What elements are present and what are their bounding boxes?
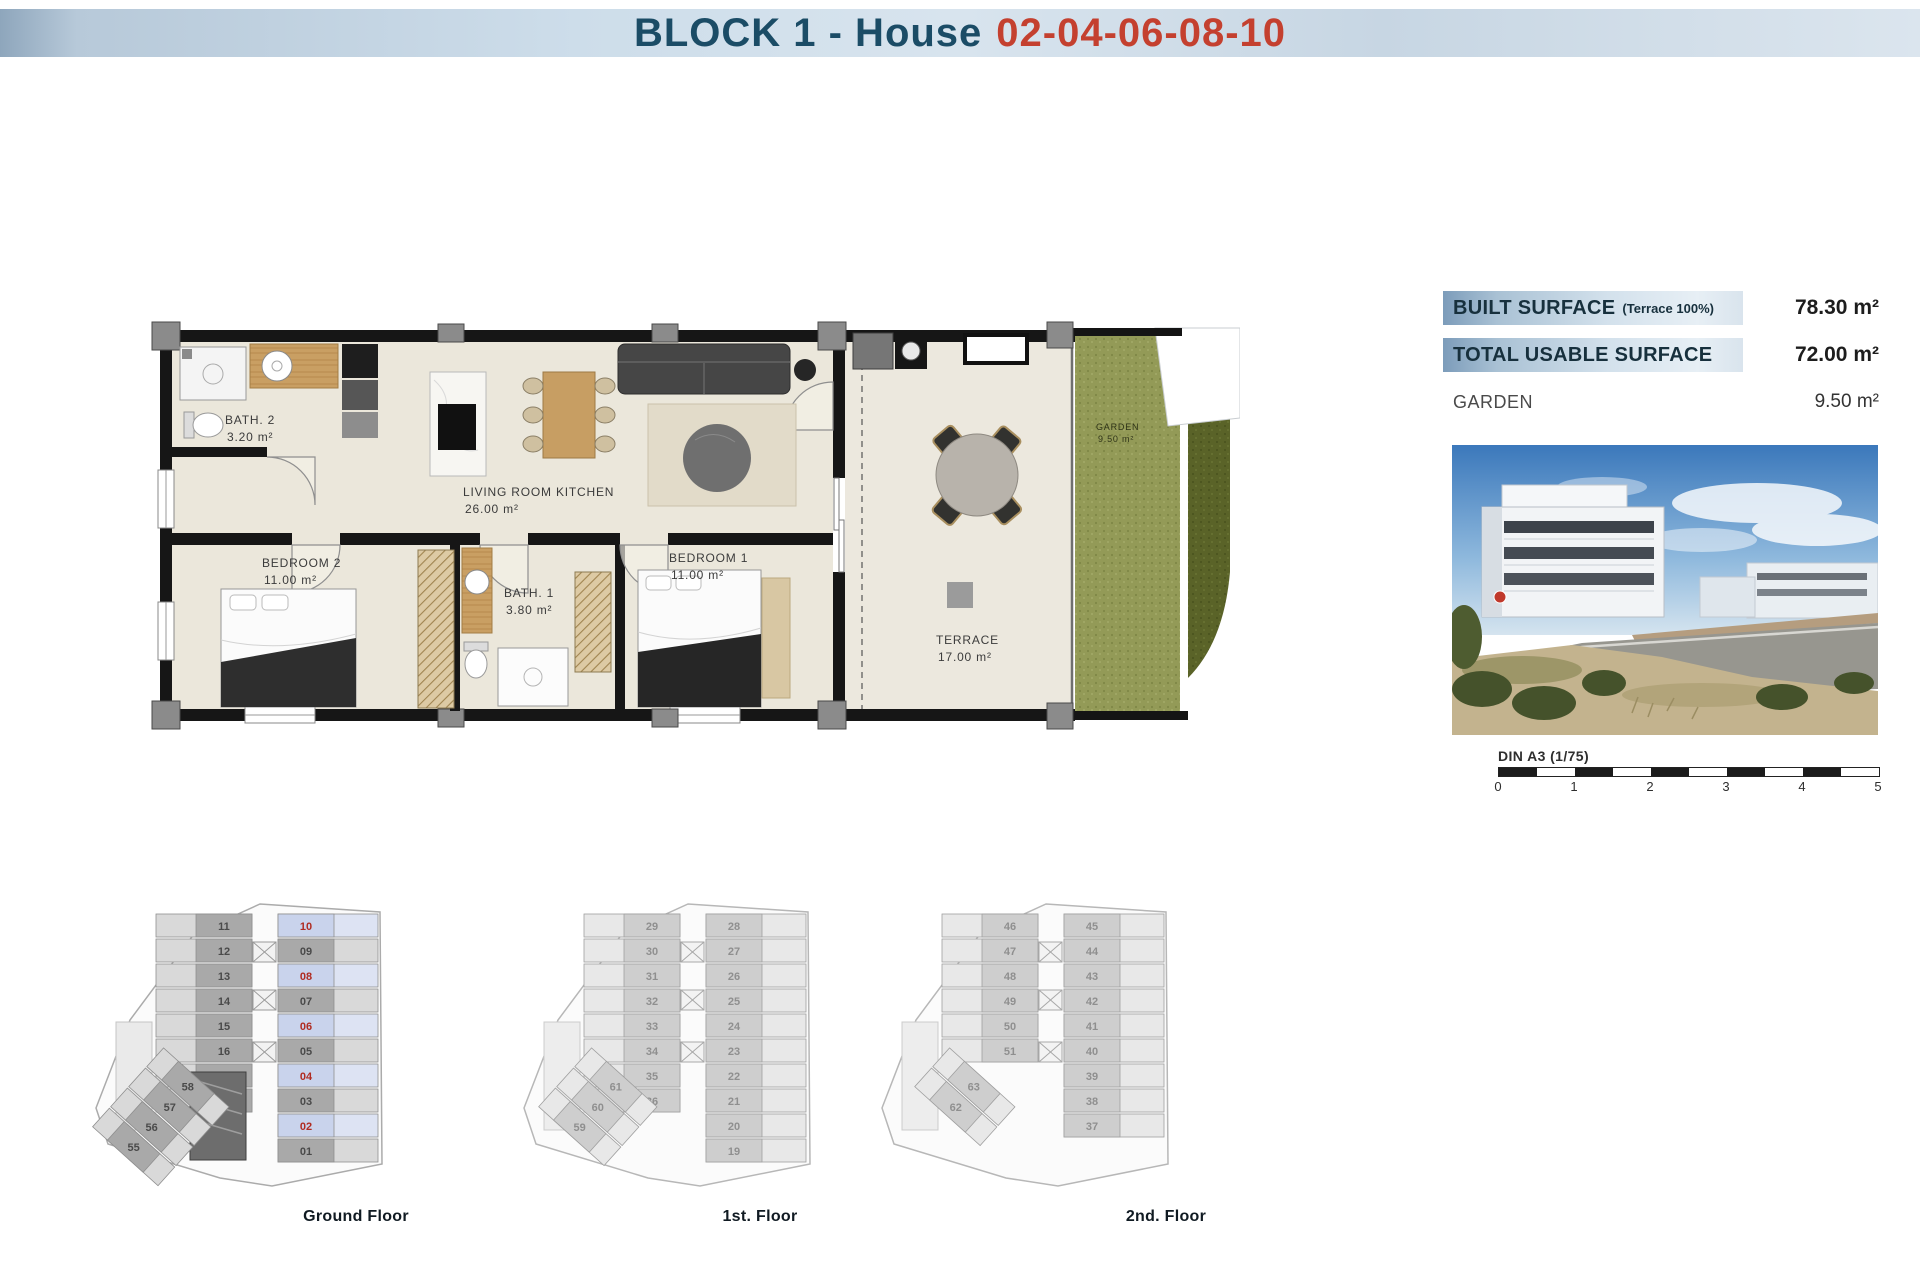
wall-top	[160, 330, 847, 342]
garden-wall-bottom	[1070, 711, 1188, 720]
unit-cell: 14	[156, 989, 252, 1012]
terrace-label: TERRACE	[936, 633, 999, 647]
scale-tick: 2	[1646, 779, 1653, 794]
unit-number: 01	[300, 1146, 312, 1158]
scale-segment	[1575, 768, 1613, 776]
usable-surface-value: 72.00 m²	[1743, 343, 1879, 367]
garden-corner-paving	[1155, 328, 1240, 426]
bath1-area: 3.80 m²	[506, 603, 552, 617]
unit-number: 22	[728, 1071, 740, 1083]
unit-number: 14	[218, 996, 231, 1008]
living-area: 26.00 m²	[465, 502, 519, 516]
unit-cell: 21	[706, 1089, 806, 1112]
living-rug	[648, 404, 796, 506]
unit-cell: 28	[706, 914, 806, 937]
unit-number: 34	[646, 1046, 659, 1058]
unit-cell: 38	[1064, 1089, 1164, 1112]
stair-box	[681, 1042, 704, 1062]
unit-number: 61	[610, 1082, 622, 1094]
unit-number: 49	[1004, 996, 1016, 1008]
unit-number: 31	[646, 971, 658, 983]
terrace-wall-bottom	[845, 709, 1075, 721]
unit-number: 41	[1086, 1021, 1098, 1033]
surface-table: BUILT SURFACE (Terrace 100%) 78.30 m² TO…	[1443, 291, 1879, 432]
second-floor-label: 2nd. Floor	[1076, 1208, 1256, 1226]
unit-number: 19	[728, 1146, 740, 1158]
unit-number: 38	[1086, 1096, 1098, 1108]
unit-number: 11	[218, 921, 230, 933]
scale-tick: 4	[1798, 779, 1805, 794]
scale-bar: DIN A3 (1/75) 012345	[1498, 748, 1880, 795]
unit-number: 28	[728, 921, 740, 933]
unit-number: 55	[127, 1142, 139, 1154]
bath2-label: BATH. 2	[225, 413, 275, 427]
unit-number: 63	[968, 1082, 980, 1094]
scale-tick: 1	[1570, 779, 1577, 794]
built-surface-value: 78.30 m²	[1743, 296, 1879, 320]
unit-number: 20	[728, 1121, 740, 1133]
unit-number: 51	[1004, 1046, 1016, 1058]
unit-cell: 37	[1064, 1114, 1164, 1137]
unit-number: 12	[218, 946, 230, 958]
mini-plan-1st-floor: 28 27 26 25 24 23 22 21 20	[500, 902, 860, 1202]
unit-number: 33	[646, 1021, 658, 1033]
unit-cell: 12	[156, 939, 252, 962]
unit-number: 56	[146, 1122, 158, 1134]
unit-cell: 29	[584, 914, 680, 937]
unit-number: 26	[728, 971, 740, 983]
page-title-house-numbers: 02-04-06-08-10	[996, 11, 1286, 56]
unit-number: 27	[728, 946, 740, 958]
unit-cell: 03	[278, 1089, 378, 1112]
unit-number: 44	[1086, 946, 1099, 958]
mini-plan-svg: 10 09 08 07 06 05 04 03 02	[72, 902, 432, 1202]
unit-cell: 09	[278, 939, 378, 962]
unit-cell: 07	[278, 989, 378, 1012]
bedroom2-label: BEDROOM 2	[262, 556, 341, 570]
stair-box	[1039, 1042, 1062, 1062]
unit-number: 30	[646, 946, 658, 958]
terrace-planter	[947, 582, 973, 608]
unit-cell: 43	[1064, 964, 1164, 987]
unit-cell: 39	[1064, 1064, 1164, 1087]
unit-cell: 48	[942, 964, 1038, 987]
bath2-shower	[180, 347, 246, 400]
garden-row-value: 9.50 m²	[1743, 391, 1879, 413]
built-surface-note: (Terrace 100%)	[1622, 301, 1714, 316]
bedroom1-label: BEDROOM 1	[669, 551, 748, 565]
built-surface-label: BUILT SURFACE	[1453, 297, 1615, 320]
kitchen-sink-counter	[250, 344, 338, 388]
unit-number: 59	[574, 1122, 586, 1134]
scale-segment	[1537, 768, 1575, 776]
scale-segment	[1765, 768, 1803, 776]
page-title: BLOCK 1 - House	[634, 11, 982, 56]
unit-number: 16	[218, 1046, 230, 1058]
bath1-shower	[498, 648, 568, 706]
unit-cell: 31	[584, 964, 680, 987]
unit-number: 32	[646, 996, 658, 1008]
unit-cell: 04	[278, 1064, 378, 1087]
unit-number: 05	[300, 1046, 312, 1058]
bath1-sink	[462, 548, 492, 633]
unit-cell: 47	[942, 939, 1038, 962]
bath1-toilet	[464, 642, 488, 678]
unit-number: 02	[300, 1121, 312, 1133]
table-row-garden: GARDEN 9.50 m²	[1443, 385, 1879, 419]
unit-cell: 05	[278, 1039, 378, 1062]
unit-number: 10	[300, 921, 312, 933]
unit-number: 24	[728, 1021, 741, 1033]
dining-table	[523, 372, 615, 458]
stair-box	[253, 990, 276, 1010]
unit-cell: 41	[1064, 1014, 1164, 1037]
table-row-built-surface: BUILT SURFACE (Terrace 100%) 78.30 m²	[1443, 291, 1879, 325]
unit-number: 57	[164, 1102, 176, 1114]
mini-plan-2nd-floor: 45 44 43 42 41 40 39 38 37	[858, 902, 1218, 1202]
bedroom2-bed	[221, 589, 356, 707]
stair-box	[253, 1042, 276, 1062]
unit-cell: 23	[706, 1039, 806, 1062]
scale-tick: 3	[1722, 779, 1729, 794]
unit-number: 37	[1086, 1121, 1098, 1133]
scale-segment	[1613, 768, 1651, 776]
bedroom1-area: 11.00 m²	[671, 568, 724, 582]
stair-box	[1039, 942, 1062, 962]
bath1-wardrobe	[575, 572, 611, 672]
bedroom1-rug	[762, 578, 790, 698]
garden-wall-top	[1070, 328, 1182, 336]
unit-number: 45	[1086, 921, 1098, 933]
unit-number: 62	[950, 1102, 962, 1114]
stair-box	[1039, 990, 1062, 1010]
unit-number: 23	[728, 1046, 740, 1058]
unit-cell: 24	[706, 1014, 806, 1037]
unit-number: 07	[300, 996, 312, 1008]
terrace-table	[931, 424, 1023, 526]
unit-cell: 01	[278, 1139, 378, 1162]
ground-floor-label: Ground Floor	[266, 1208, 446, 1226]
unit-number: 43	[1086, 971, 1098, 983]
unit-number: 46	[1004, 921, 1016, 933]
unit-number: 25	[728, 996, 740, 1008]
unit-cell: 08	[278, 964, 378, 987]
scale-tick: 0	[1494, 779, 1501, 794]
unit-cell: 11	[156, 914, 252, 937]
unit-number: 58	[182, 1082, 194, 1094]
unit-number: 13	[218, 971, 230, 983]
side-table	[794, 359, 816, 381]
kitchen-appliance-column	[342, 344, 378, 438]
main-floor-plan: BATH. 2 3.20 m² LIVING ROOM KITCHEN 26.0…	[150, 320, 1240, 730]
unit-cell: 50	[942, 1014, 1038, 1037]
mini-plan-svg: 28 27 26 25 24 23 22 21 20	[500, 902, 860, 1202]
bedroom2-area: 11.00 m²	[264, 573, 317, 587]
header-bar: BLOCK 1 - House 02-04-06-08-10	[0, 9, 1920, 57]
kitchen-island	[430, 372, 486, 476]
unit-cell: 49	[942, 989, 1038, 1012]
unit-number: 47	[1004, 946, 1016, 958]
unit-number: 06	[300, 1021, 312, 1033]
wall-right-lower	[833, 572, 845, 721]
scale-bar-label: DIN A3 (1/75)	[1498, 748, 1880, 764]
unit-number: 03	[300, 1096, 312, 1108]
scale-bar-segments	[1498, 767, 1880, 777]
unit-cell: 32	[584, 989, 680, 1012]
bath2-toilet	[184, 412, 223, 438]
scale-segment	[1803, 768, 1841, 776]
unit-number: 35	[646, 1071, 658, 1083]
unit-cell: 27	[706, 939, 806, 962]
mini-plan-ground-floor: 10 09 08 07 06 05 04 03 02	[72, 902, 432, 1202]
scale-segment	[1727, 768, 1765, 776]
unit-number: 09	[300, 946, 312, 958]
unit-cell: 44	[1064, 939, 1164, 962]
unit-cell: 02	[278, 1114, 378, 1137]
unit-cell: 22	[706, 1064, 806, 1087]
scale-segment	[1499, 768, 1537, 776]
bedroom2-wardrobe	[418, 550, 454, 708]
unit-cell: 13	[156, 964, 252, 987]
stair-box	[253, 942, 276, 962]
photo-red-sign	[1494, 591, 1506, 603]
unit-number: 39	[1086, 1071, 1098, 1083]
page: BLOCK 1 - House 02-04-06-08-10	[0, 0, 1920, 1280]
bedroom1-bed	[638, 570, 761, 707]
unit-number: 60	[592, 1102, 604, 1114]
unit-number: 04	[300, 1071, 313, 1083]
unit-number: 48	[1004, 971, 1016, 983]
bath1-label: BATH. 1	[504, 586, 554, 600]
unit-cell: 46	[942, 914, 1038, 937]
unit-cell: 06	[278, 1014, 378, 1037]
unit-cell: 40	[1064, 1039, 1164, 1062]
unit-cell: 25	[706, 989, 806, 1012]
building-photo	[1452, 445, 1878, 735]
sofa	[618, 344, 816, 394]
bath2-area: 3.20 m²	[227, 430, 273, 444]
garden-area: 9.50 m²	[1098, 434, 1134, 444]
unit-cell: 20	[706, 1114, 806, 1137]
living-label: LIVING ROOM KITCHEN	[463, 485, 614, 499]
unit-cell: 15	[156, 1014, 252, 1037]
unit-number: 42	[1086, 996, 1098, 1008]
unit-cell: 19	[706, 1139, 806, 1162]
unit-cell: 42	[1064, 989, 1164, 1012]
unit-cell: 26	[706, 964, 806, 987]
unit-number: 15	[218, 1021, 230, 1033]
unit-cell: 33	[584, 1014, 680, 1037]
usable-surface-label: TOTAL USABLE SURFACE	[1453, 344, 1712, 367]
unit-cell: 30	[584, 939, 680, 962]
garden-row-label: GARDEN	[1453, 392, 1533, 413]
scale-bar-ticks: 012345	[1498, 779, 1880, 795]
unit-cell: 10	[278, 914, 378, 937]
unit-number: 40	[1086, 1046, 1098, 1058]
wall-right-upper	[833, 330, 845, 478]
unit-number: 50	[1004, 1021, 1016, 1033]
scale-segment	[1841, 768, 1879, 776]
unit-cell: 45	[1064, 914, 1164, 937]
unit-number: 29	[646, 921, 658, 933]
first-floor-label: 1st. Floor	[670, 1208, 850, 1226]
stair-box	[681, 990, 704, 1010]
mini-plan-svg: 45 44 43 42 41 40 39 38 37	[858, 902, 1218, 1202]
stair-box	[681, 942, 704, 962]
scale-segment	[1651, 768, 1689, 776]
table-row-usable-surface: TOTAL USABLE SURFACE 72.00 m²	[1443, 338, 1879, 372]
terrace-area: 17.00 m²	[938, 650, 992, 664]
garden-label: GARDEN	[1096, 422, 1139, 432]
unit-number: 08	[300, 971, 312, 983]
unit-number: 21	[728, 1096, 740, 1108]
sliding-door	[834, 478, 844, 572]
scale-segment	[1689, 768, 1727, 776]
scale-tick: 5	[1874, 779, 1881, 794]
